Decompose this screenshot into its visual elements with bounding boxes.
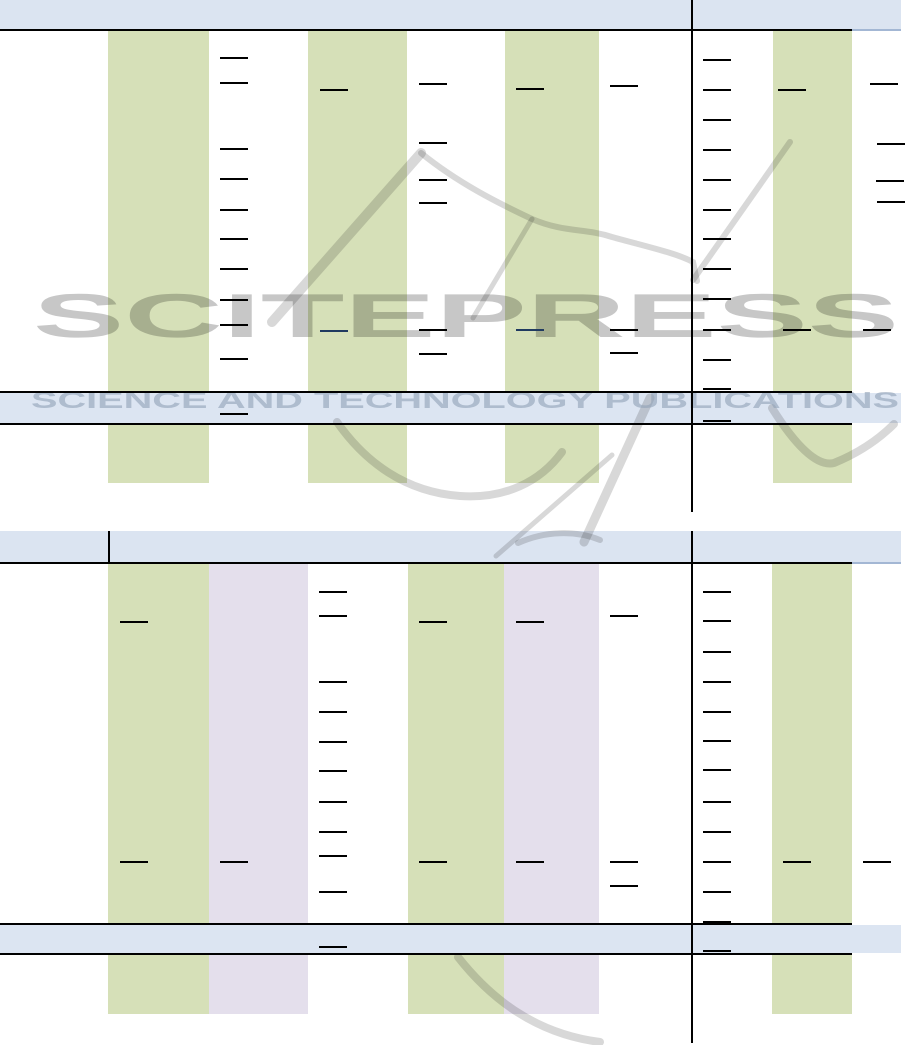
results-table-bottom-cell-dash	[319, 741, 347, 743]
results-table-bottom-cell-dash	[703, 651, 731, 653]
results-table-top-cell-dash	[703, 359, 731, 361]
results-table-top-cell-dash	[419, 83, 447, 85]
results-table-top-cell-dash	[320, 89, 348, 91]
results-table-bottom-cell-dash	[319, 711, 347, 713]
results-table-top-cell-dash	[877, 201, 905, 203]
results-table-bottom-cell-dash	[703, 921, 731, 923]
results-table-bottom-cell-dash	[319, 681, 347, 683]
results-table-bottom-cell-dash	[703, 681, 731, 683]
results-table-top-cell-dash	[220, 238, 248, 240]
results-table-bottom-cell-dash	[703, 831, 731, 833]
results-table-top-cell-dash	[703, 179, 731, 181]
results-table-bottom-cell-dash	[610, 861, 638, 863]
results-table-bottom-cell-dash	[703, 711, 731, 713]
scanned-paper-page: SCITEPRESS SCIENCE AND TECHNOLOGY PUBLIC…	[0, 0, 917, 1045]
results-table-bottom-cell-dash	[319, 831, 347, 833]
results-table-bottom-cell-dash	[120, 861, 148, 863]
results-table-top-cell-dash	[703, 59, 731, 61]
results-table-bottom-cell-dash	[319, 591, 347, 593]
results-table-top-cell-dash	[703, 149, 731, 151]
results-table-bottom-cell-dash	[516, 621, 544, 623]
results-table-bottom-cell-dash	[220, 861, 248, 863]
results-table-bottom-cell-dash	[703, 801, 731, 803]
results-table-bottom-cell-dash	[516, 861, 544, 863]
results-table-top-cell-dash	[703, 298, 731, 300]
results-table-top-cell-dash	[703, 119, 731, 121]
results-table-bottom-cell-dash	[319, 891, 347, 893]
results-table-top-cell-dash	[783, 329, 811, 331]
results-table-bottom-cell-dash	[703, 891, 731, 893]
results-table-top-cell-dash	[220, 413, 248, 415]
results-table-bottom-cell-dash	[610, 885, 638, 887]
results-table-bottom-vertical-divider	[691, 531, 693, 1043]
results-table-top-cell-dash	[516, 329, 544, 331]
results-table-bottom-header-divider	[108, 531, 110, 562]
results-table-top-highlight-row-top-line	[0, 391, 852, 393]
results-table-top-cell-dash	[419, 202, 447, 204]
results-table-top-cell-dash	[220, 358, 248, 360]
results-table-top-cell-dash	[220, 82, 248, 84]
results-table-bottom-cell-dash	[419, 861, 447, 863]
results-table-top-cell-dash	[220, 57, 248, 59]
results-table-top-cell-dash	[220, 299, 248, 301]
results-table-bottom-cell-dash	[703, 620, 731, 622]
results-table-top-cell-dash	[419, 329, 447, 331]
results-table-top-cell-dash	[220, 268, 248, 270]
results-table-top-cell-dash	[220, 209, 248, 211]
results-table-bottom-cell-dash	[703, 769, 731, 771]
results-table-top-cell-dash	[419, 179, 447, 181]
results-table-top-cell-dash	[419, 142, 447, 144]
results-table-top-cell-dash	[610, 329, 638, 331]
table-lines-layer	[0, 0, 917, 1045]
results-table-bottom-cell-dash	[703, 591, 731, 593]
results-table-top-cell-dash	[703, 238, 731, 240]
results-table-top-header-underline	[0, 29, 852, 32]
results-table-top-cell-dash	[220, 324, 248, 326]
results-table-bottom-header-underline	[0, 562, 852, 565]
results-table-bottom-cell-dash	[319, 770, 347, 772]
results-table-top-highlight-row-bottom-line	[0, 423, 852, 425]
results-table-top-cell-dash	[863, 329, 891, 331]
results-table-bottom-cell-dash	[319, 855, 347, 857]
results-table-top-cell-dash	[320, 330, 348, 332]
results-table-top-cell-dash	[703, 329, 731, 331]
results-table-top-cell-dash	[877, 143, 905, 145]
results-table-top-cell-dash	[703, 388, 731, 390]
results-table-top-cell-dash	[516, 88, 544, 90]
results-table-bottom-cell-dash	[319, 615, 347, 617]
results-table-top-header-underline-thin	[852, 29, 901, 31]
results-table-bottom-cell-dash	[703, 861, 731, 863]
results-table-top-cell-dash	[610, 85, 638, 87]
results-table-bottom-highlight-row-bottom-line	[0, 953, 852, 955]
results-table-bottom-cell-dash	[120, 621, 148, 623]
results-table-top-cell-dash	[419, 353, 447, 355]
results-table-bottom-cell-dash	[319, 946, 347, 948]
results-table-bottom-cell-dash	[319, 801, 347, 803]
results-table-top-cell-dash	[703, 209, 731, 211]
results-table-top-cell-dash	[870, 83, 898, 85]
results-table-top-cell-dash	[703, 420, 731, 422]
results-table-bottom-cell-dash	[419, 621, 447, 623]
results-table-top-cell-dash	[610, 352, 638, 354]
results-table-bottom-cell-dash	[863, 861, 891, 863]
results-table-top-cell-dash	[703, 89, 731, 91]
results-table-top-cell-dash	[220, 148, 248, 150]
results-table-bottom-cell-dash	[703, 950, 731, 952]
results-table-bottom-header-underline-thin	[852, 562, 901, 564]
results-table-bottom-cell-dash	[703, 740, 731, 742]
results-table-top-cell-dash	[778, 89, 806, 91]
results-table-bottom-cell-dash	[783, 861, 811, 863]
results-table-top-cell-dash	[876, 180, 904, 182]
results-table-top-vertical-divider	[691, 0, 693, 512]
results-table-top-cell-dash	[703, 268, 731, 270]
results-table-top-cell-dash	[220, 178, 248, 180]
results-table-bottom-cell-dash	[610, 615, 638, 617]
